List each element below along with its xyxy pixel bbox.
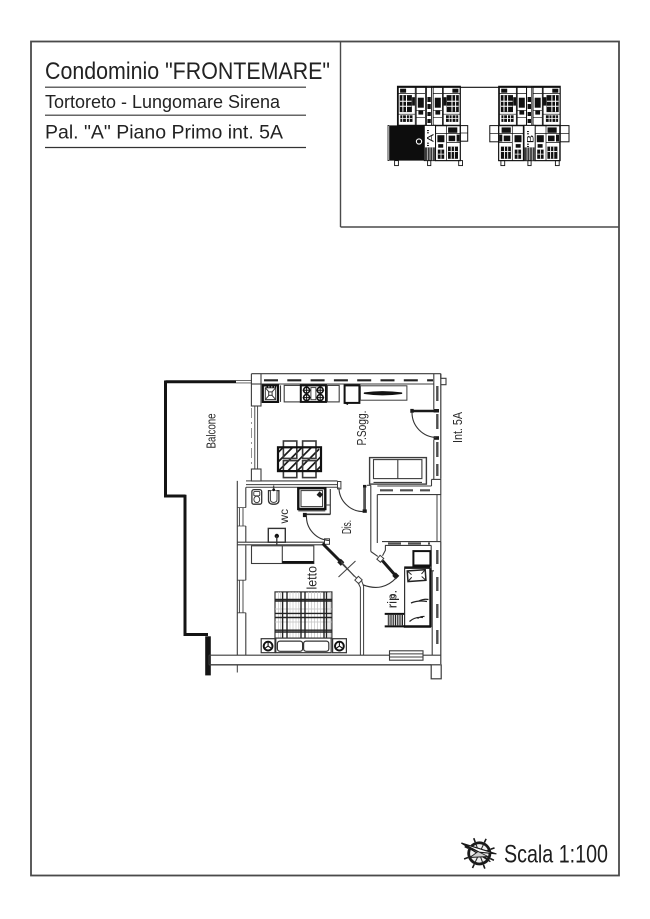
svg-text:wc: wc — [279, 509, 291, 525]
svg-text:"B": "B" — [525, 131, 535, 148]
svg-text:Int. 5A: Int. 5A — [450, 412, 465, 443]
svg-text:Balcone: Balcone — [204, 414, 219, 449]
svg-text:Dis.: Dis. — [339, 520, 354, 534]
svg-text:Condominio "FRONTEMARE": Condominio "FRONTEMARE" — [45, 58, 330, 85]
svg-text:"A": "A" — [426, 130, 436, 147]
svg-text:P.Sogg.: P.Sogg. — [354, 411, 369, 446]
svg-text:letto: letto — [304, 566, 319, 590]
svg-text:rip.: rip. — [384, 590, 399, 609]
svg-text:Tortoreto - Lungomare Sirena: Tortoreto - Lungomare Sirena — [45, 91, 281, 112]
svg-text:Pal. "A" Piano Primo int. 5A: Pal. "A" Piano Primo int. 5A — [45, 122, 283, 144]
svg-text:Scala 1:100: Scala 1:100 — [504, 841, 608, 869]
